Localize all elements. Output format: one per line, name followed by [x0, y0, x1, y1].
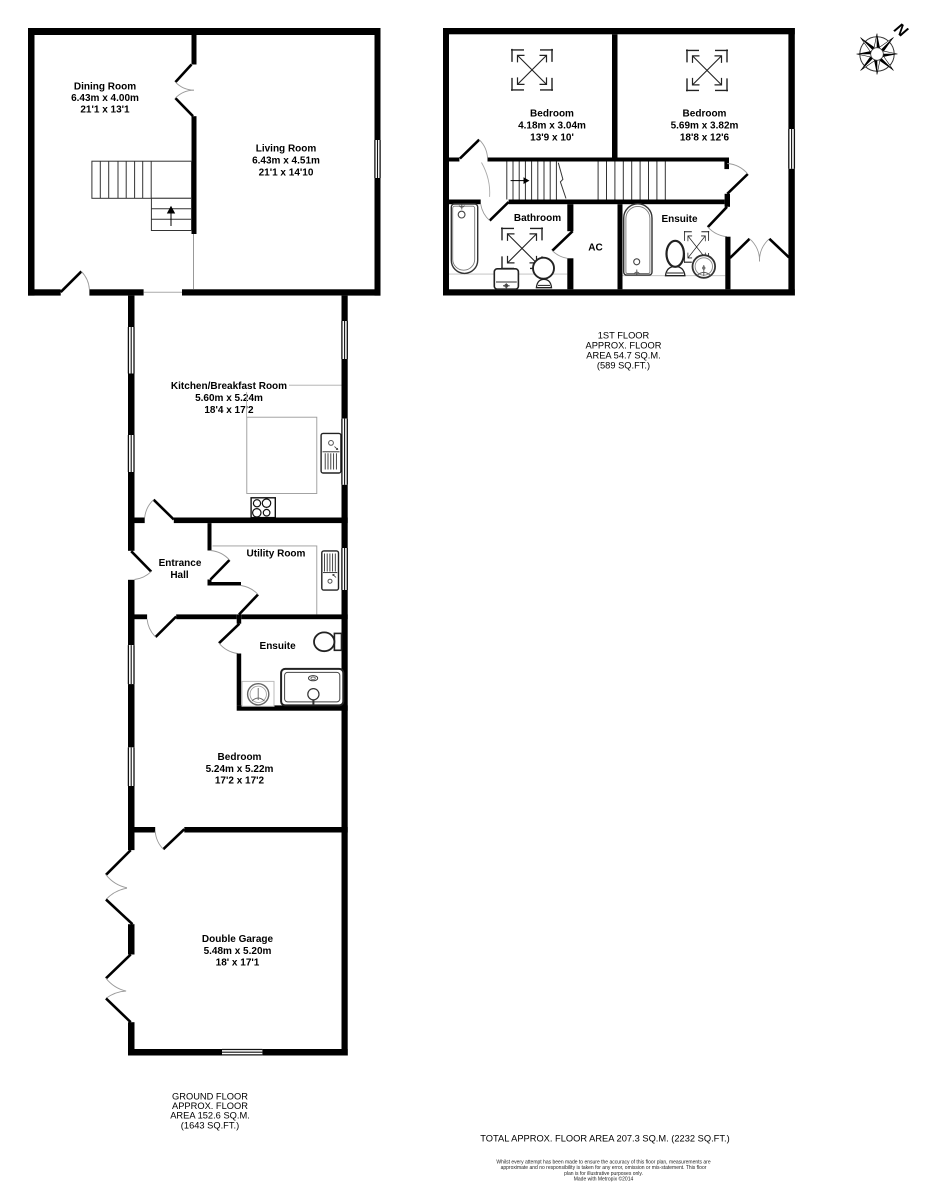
svg-text:AREA 152.6 SQ.M.: AREA 152.6 SQ.M. [170, 1111, 250, 1121]
svg-text:21'1 x 13'1: 21'1 x 13'1 [80, 105, 130, 116]
svg-text:Bedroom: Bedroom [530, 109, 574, 120]
svg-text:Dining Room: Dining Room [74, 81, 136, 92]
svg-text:6.43m x 4.00m: 6.43m x 4.00m [71, 93, 139, 104]
svg-text:18' x 17'1: 18' x 17'1 [216, 958, 260, 969]
svg-text:TOTAL APPROX. FLOOR AREA 207.3: TOTAL APPROX. FLOOR AREA 207.3 SQ.M. (22… [480, 1134, 729, 1144]
svg-text:AC: AC [588, 243, 602, 254]
svg-text:1ST FLOOR: 1ST FLOOR [598, 331, 650, 341]
svg-text:17'2 x 17'2: 17'2 x 17'2 [215, 775, 265, 786]
svg-text:6.43m x 4.51m: 6.43m x 4.51m [252, 156, 320, 167]
svg-text:Ensuite: Ensuite [260, 641, 297, 652]
svg-text:Made with Metropix ©2014: Made with Metropix ©2014 [574, 1176, 634, 1183]
svg-text:GROUND FLOOR: GROUND FLOOR [172, 1091, 248, 1101]
svg-text:APPROX. FLOOR: APPROX. FLOOR [172, 1101, 248, 1111]
svg-text:(1643 SQ.FT.): (1643 SQ.FT.) [181, 1120, 239, 1130]
svg-text:AREA 54.7 SQ.M.: AREA 54.7 SQ.M. [586, 351, 660, 361]
svg-text:5.60m x 5.24m: 5.60m x 5.24m [195, 393, 263, 404]
svg-text:Bedroom: Bedroom [218, 752, 262, 763]
svg-text:4.18m x 3.04m: 4.18m x 3.04m [518, 121, 586, 132]
svg-text:Double Garage: Double Garage [202, 934, 274, 945]
svg-text:18'8 x 12'6: 18'8 x 12'6 [680, 133, 730, 144]
svg-text:5.24m x 5.22m: 5.24m x 5.22m [206, 764, 274, 775]
svg-text:Living Room: Living Room [256, 144, 317, 155]
svg-text:Entrance: Entrance [159, 558, 202, 569]
svg-text:21'1 x 14'10: 21'1 x 14'10 [259, 168, 314, 179]
svg-text:5.48m x 5.20m: 5.48m x 5.20m [204, 946, 272, 957]
svg-text:Hall: Hall [170, 570, 189, 581]
svg-text:Utility Room: Utility Room [247, 549, 306, 560]
svg-text:5.69m x 3.82m: 5.69m x 3.82m [671, 121, 739, 132]
svg-text:Bathroom: Bathroom [514, 213, 561, 224]
svg-text:Kitchen/Breakfast Room: Kitchen/Breakfast Room [171, 381, 287, 392]
svg-text:Ensuite: Ensuite [661, 214, 698, 225]
svg-text:13'9 x 10': 13'9 x 10' [530, 133, 574, 144]
svg-text:(589 SQ.FT.): (589 SQ.FT.) [597, 361, 650, 371]
svg-text:Bedroom: Bedroom [683, 109, 727, 120]
svg-text:APPROX. FLOOR: APPROX. FLOOR [586, 341, 662, 351]
